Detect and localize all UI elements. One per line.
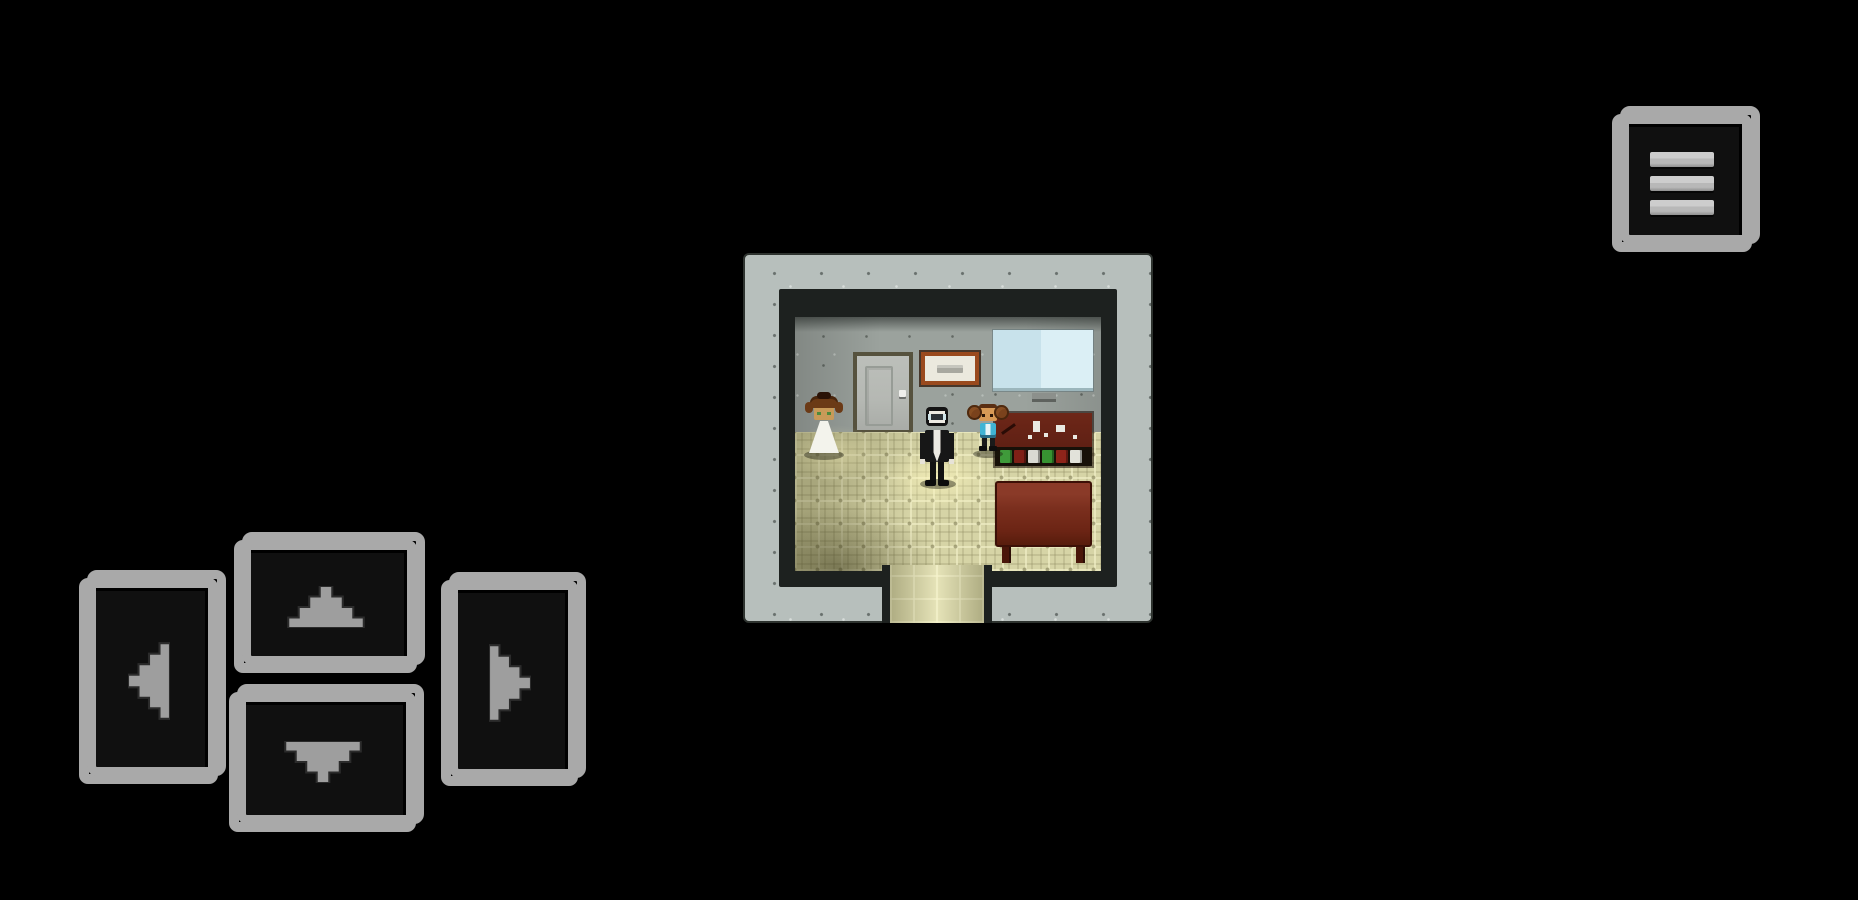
desk-paper-icon [1056, 425, 1065, 432]
desk-flask-icon [1033, 421, 1040, 432]
child-pigtail-bun [967, 405, 982, 420]
bride-eye [827, 412, 831, 415]
book-spine [1056, 450, 1068, 463]
bookshelf-row [995, 447, 1092, 466]
menu-button[interactable] [1612, 114, 1752, 252]
desk [995, 413, 1092, 466]
whiteboard-mount [1032, 393, 1056, 402]
arrow-left-icon [128, 639, 170, 723]
man-suit-torso [925, 430, 949, 462]
book-spine [1028, 450, 1040, 463]
bride-dress [802, 421, 846, 453]
door-handle-icon [899, 390, 906, 397]
man-arm [949, 433, 954, 459]
child-shirt [980, 423, 996, 438]
child-eye [982, 414, 985, 417]
arrow-up-icon [284, 586, 368, 628]
doorway-opening [882, 565, 992, 623]
dpad-right-button[interactable] [441, 580, 578, 786]
game-room [743, 253, 1153, 623]
man-arm [920, 433, 925, 459]
character-shadow [973, 450, 1003, 458]
child-shoe [989, 446, 997, 451]
desk-top [995, 413, 1092, 447]
child-shirt-stripe [986, 424, 991, 435]
book-spine [1014, 450, 1026, 463]
notice-text-bar [937, 365, 963, 373]
man-hand [920, 459, 925, 464]
bride-hair-bun [835, 402, 843, 413]
man-hand [949, 459, 954, 464]
table [995, 481, 1092, 563]
desk-speck-icon [1073, 435, 1077, 439]
door-panel [865, 366, 893, 426]
whiteboard [993, 330, 1093, 391]
character-girl-child [967, 403, 1009, 459]
man-leg [930, 462, 936, 482]
bride-hair-bun [805, 402, 813, 413]
hamburger-menu-icon [1650, 152, 1714, 215]
arrow-right-icon [489, 641, 531, 725]
room-interior [795, 317, 1101, 571]
bride-eye [817, 412, 821, 415]
desk-speck-icon [1044, 433, 1048, 437]
table-top [995, 481, 1092, 547]
bride-face [814, 406, 834, 420]
dpad-down-button[interactable] [229, 692, 416, 832]
book-spine [1070, 450, 1082, 463]
game-screen [0, 0, 1858, 900]
book-spine [1042, 450, 1054, 463]
character-bride [802, 395, 846, 461]
arrow-down-icon [281, 741, 365, 783]
man-leg [938, 462, 944, 482]
man-shirt [934, 430, 941, 462]
desk-speck-icon [1028, 435, 1032, 439]
dpad-left-button[interactable] [79, 578, 218, 784]
man-shoe [938, 480, 949, 486]
man-glasses [928, 414, 946, 420]
man-shoe [925, 480, 936, 486]
notice-board [921, 352, 979, 385]
child-shoe [979, 446, 987, 451]
child-eye [990, 414, 993, 417]
man-head [926, 407, 948, 426]
child-pigtail-bun [994, 405, 1009, 420]
bride-topknot [817, 392, 831, 399]
character-man-in-suit [917, 405, 957, 489]
door [853, 352, 913, 434]
dpad-up-button[interactable] [234, 540, 417, 673]
